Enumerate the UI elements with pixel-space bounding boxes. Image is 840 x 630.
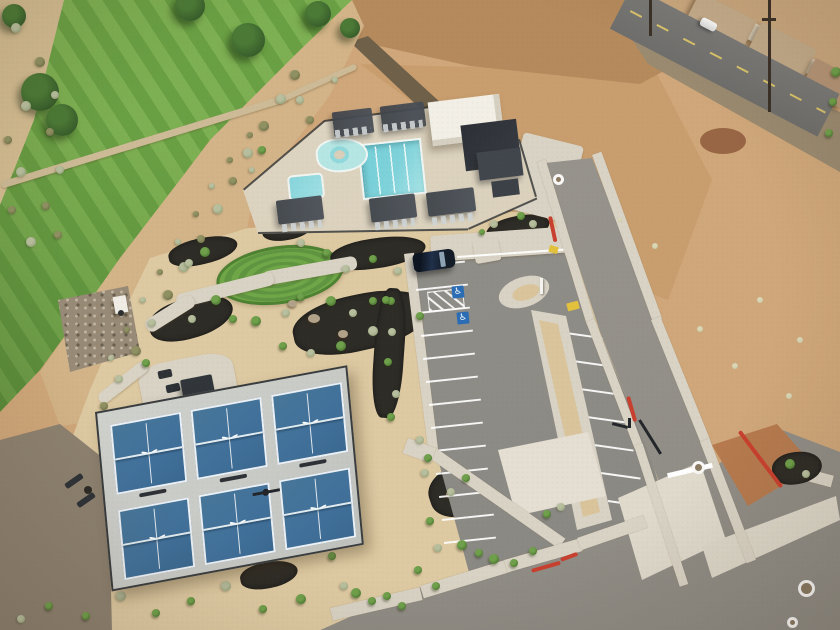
bush	[51, 91, 59, 99]
bush	[490, 220, 498, 228]
bush	[21, 101, 31, 111]
bush	[447, 488, 455, 496]
bush	[243, 148, 253, 158]
bush	[140, 297, 146, 303]
bush	[290, 70, 300, 80]
bush	[175, 239, 181, 245]
pickleball-court	[110, 412, 187, 495]
lap-pool	[357, 138, 427, 200]
bush	[197, 235, 205, 243]
bush	[652, 243, 658, 249]
lap-pool-lane-lines	[362, 142, 423, 196]
bush	[368, 326, 378, 336]
bush	[46, 128, 54, 136]
bush	[200, 247, 210, 257]
bush	[296, 96, 304, 104]
bush	[188, 315, 196, 323]
bush	[211, 295, 221, 305]
bush	[543, 510, 551, 518]
bush	[388, 328, 396, 336]
bush	[462, 474, 470, 482]
bush	[148, 319, 156, 327]
bush	[247, 132, 253, 138]
bush	[42, 202, 50, 210]
bush	[383, 592, 391, 600]
bush	[387, 413, 395, 421]
bird-logo	[222, 433, 237, 442]
pickleball-court	[271, 382, 348, 465]
bush	[369, 255, 377, 263]
bush	[489, 554, 499, 564]
bush	[187, 597, 195, 605]
bush	[193, 211, 199, 217]
bush	[426, 517, 434, 525]
bush	[479, 229, 485, 235]
bird-logo	[142, 448, 157, 457]
bush	[17, 615, 25, 623]
bush	[306, 116, 314, 124]
bush	[307, 349, 315, 357]
bush	[475, 549, 483, 557]
pickleball-court	[279, 467, 356, 550]
bush	[16, 167, 26, 177]
bush	[382, 296, 390, 304]
clubhouse-patio-canopy-small	[491, 178, 520, 197]
bush	[392, 390, 400, 398]
bush	[618, 218, 622, 222]
bush	[529, 220, 537, 228]
pickleball-court	[118, 497, 195, 580]
bird-logo	[310, 504, 325, 513]
bush	[4, 136, 12, 144]
bush	[421, 469, 429, 477]
bush	[259, 605, 267, 613]
bush	[517, 212, 525, 220]
bush	[282, 309, 290, 317]
bush	[124, 327, 130, 333]
bush	[297, 293, 305, 301]
bush	[108, 355, 114, 361]
bush	[229, 315, 237, 323]
bush	[276, 94, 286, 104]
bush	[251, 316, 261, 326]
bush	[557, 503, 565, 511]
bird-logo	[230, 518, 245, 527]
bush	[414, 566, 422, 574]
bush	[416, 436, 424, 444]
bird-logo	[149, 533, 164, 542]
bush	[131, 346, 141, 356]
bush	[185, 259, 193, 267]
bush	[297, 239, 305, 247]
bush	[249, 167, 255, 173]
bush	[259, 121, 269, 131]
bush	[529, 547, 537, 555]
bush	[336, 341, 346, 351]
bush	[209, 183, 215, 189]
bush	[11, 23, 21, 33]
bush	[35, 57, 45, 67]
bush	[328, 552, 336, 560]
bush	[227, 157, 233, 163]
bush	[398, 602, 406, 610]
bush	[786, 393, 792, 399]
bush	[115, 375, 123, 383]
dirt-mound	[700, 128, 746, 154]
bush	[54, 231, 62, 239]
bush	[323, 249, 331, 257]
pool-island	[329, 145, 350, 164]
bush	[296, 594, 306, 604]
bush	[369, 297, 377, 305]
bush	[26, 237, 36, 247]
bush	[152, 609, 160, 617]
bush	[326, 296, 336, 306]
bush	[829, 98, 837, 106]
bush	[434, 544, 442, 552]
bush	[416, 312, 424, 320]
bush	[163, 290, 173, 300]
bird-logo	[303, 418, 318, 427]
bush	[510, 559, 518, 567]
bush	[424, 454, 432, 462]
bush	[757, 297, 763, 303]
bush	[340, 582, 348, 590]
aerial-photo-recreation-center: ♿ ♿	[0, 0, 840, 630]
bush	[351, 588, 361, 598]
bush	[825, 129, 833, 137]
trash-can	[118, 310, 124, 316]
bush	[332, 77, 338, 83]
bush	[45, 602, 53, 610]
bush	[368, 597, 376, 605]
pickleball-court	[191, 397, 268, 480]
bush	[394, 267, 402, 275]
bush	[116, 591, 126, 601]
bush	[157, 269, 163, 275]
bush	[342, 265, 350, 273]
bush	[831, 67, 840, 77]
bush	[732, 363, 738, 369]
bush	[213, 204, 223, 214]
bush	[279, 342, 287, 350]
bush	[384, 358, 392, 366]
bush	[349, 309, 357, 317]
bush	[697, 326, 703, 332]
bush	[82, 612, 90, 620]
bush	[142, 359, 150, 367]
bush	[802, 470, 810, 478]
bush	[56, 166, 64, 174]
bush	[229, 177, 237, 185]
bush	[797, 337, 803, 343]
bush	[258, 146, 266, 154]
bush	[221, 581, 231, 591]
bush	[8, 206, 16, 214]
bush	[457, 540, 467, 550]
bush	[432, 582, 440, 590]
bush	[785, 459, 795, 469]
clubhouse-patio-canopy	[476, 147, 523, 180]
